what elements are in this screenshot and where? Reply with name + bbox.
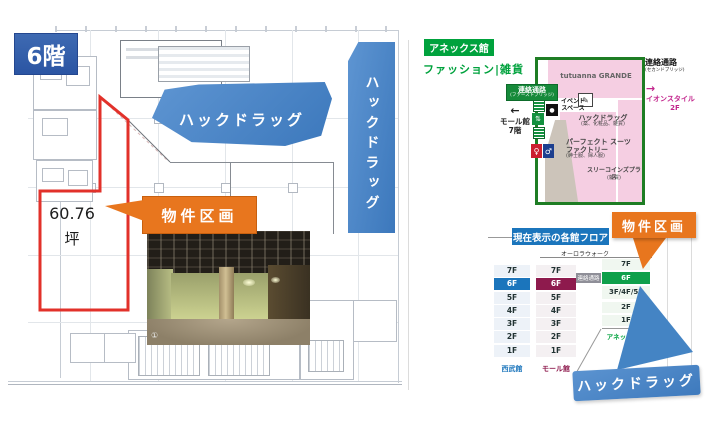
store-category-hackdrug: (薬、化粧品、雑貨) xyxy=(568,122,638,128)
annex-column-label: アネックス館 xyxy=(602,331,650,341)
camera-icon: ● xyxy=(549,107,554,114)
hackdrug-vertical-label: ハックドラッグ xyxy=(362,75,382,215)
photo-column xyxy=(219,267,234,325)
floor-cell: 2F xyxy=(494,331,530,343)
floor-cell: 3F xyxy=(536,318,576,330)
property-section-callout-right: 物件区画 xyxy=(612,212,696,238)
seibu-column-label: 西武館 xyxy=(494,364,530,374)
hackdrug-callout-label: ハックドラッグ xyxy=(179,109,305,130)
aurora-walk-label: オーロラウォーク xyxy=(554,249,616,258)
corridor-second-bridge-label: 連絡通路 (セカンドブリッジ) xyxy=(645,58,703,73)
hackdrug-callout-bottom: ハックドラッグ xyxy=(572,365,700,402)
store-category-suits: (紳士服、婦人服) xyxy=(566,154,634,160)
floor-cell-highlight: 6F xyxy=(536,278,576,290)
photo-floor xyxy=(147,319,310,345)
camera-box-icon: ● xyxy=(546,104,558,116)
left-arrow-icon: ← xyxy=(493,104,537,117)
floor-cell: 3F xyxy=(494,318,530,330)
panel-left-guide xyxy=(408,40,409,390)
floor-cell: 5F xyxy=(494,292,530,304)
photo-wall-right xyxy=(268,265,310,325)
floor-cell: 7F xyxy=(536,265,576,277)
photo-number-marker: ① xyxy=(151,331,158,340)
restroom-female-icon: ♀ xyxy=(531,144,542,158)
restroom-male-icon: ♂ xyxy=(543,144,554,158)
store-category-threecoins: (雑貨) xyxy=(586,176,642,182)
floor-cell: 3F/4F/5F xyxy=(602,286,650,299)
floor-cell: 5F xyxy=(536,292,576,304)
corridor-first-bridge-badge: 連絡通路 (ファーストブリッジ) xyxy=(506,84,558,101)
right-arrow-icon: → xyxy=(646,82,704,95)
mall-floor-column: 7F 6F 5F 4F 3F 2F 1F xyxy=(536,265,576,358)
escalator-icon: ⇅ xyxy=(532,113,544,125)
floor-cell: 2F xyxy=(536,331,576,343)
floor-cell: 4F xyxy=(494,305,530,317)
property-section-callout: 物件区画 xyxy=(142,196,257,234)
floor-cell: 1F xyxy=(602,315,650,326)
hackdrug-callout-vertical: ハックドラッグ xyxy=(348,42,395,233)
floor-number-badge: 6階 xyxy=(14,33,78,75)
floor-cell: 2F xyxy=(602,302,650,313)
aeon-style-link: → イオンスタイル 2F xyxy=(646,82,704,112)
panel-right-guide-2 xyxy=(691,228,692,385)
category-label: ファッション|雑貨 xyxy=(423,61,524,77)
floor-guide-panel: アネックス館 ファッション|雑貨 tutuanna GRANDE ✎ ● イベン… xyxy=(408,18,702,408)
photo-wall-left xyxy=(147,269,173,325)
event-space-label: イベント スペース xyxy=(558,99,588,112)
floor-cell: 7F xyxy=(494,265,530,277)
photo-light xyxy=(271,277,280,283)
store-label-suits-1: パーフェクト スーツ xyxy=(566,138,634,146)
floor-cell-highlight: 6F xyxy=(602,272,650,284)
floor-cell: 1F xyxy=(536,345,576,357)
floor-cell-highlight: 6F xyxy=(494,278,530,290)
property-section-label: 物件区画 xyxy=(161,205,237,226)
mall-map: tutuanna GRANDE ✎ ● イベント スペース ハックドラッグ (薬… xyxy=(535,57,645,205)
corridor-connector-badge: 連絡通路 xyxy=(576,273,601,283)
property-flyer-page: { "left_panel": { "floor_badge": "6階", "… xyxy=(0,0,705,423)
floor-number-label: 6階 xyxy=(26,37,65,71)
stair-icon xyxy=(533,100,545,112)
stair-icon xyxy=(533,127,545,139)
mall-link: ← モール館 7階 xyxy=(493,104,537,135)
annex-badge-label: アネックス館 xyxy=(429,40,489,55)
annex-bottom-line xyxy=(602,328,650,329)
annex-building-badge: アネックス館 xyxy=(424,39,494,56)
panel-right-guide-1 xyxy=(667,228,668,385)
store-label-tutuanna: tutuanna GRANDE xyxy=(556,72,636,80)
photo-light xyxy=(243,279,255,286)
table-header-line xyxy=(488,237,512,238)
mall-column-label: モール館 xyxy=(536,364,576,374)
seibu-floor-column: 7F 6F 5F 4F 3F 2F 1F xyxy=(494,265,530,358)
interior-photo: ① xyxy=(147,231,310,345)
annex-floor-column: 7F 6F 3F/4F/5F 2F 1F xyxy=(602,259,650,329)
floor-cell: 1F xyxy=(494,345,530,357)
floor-table-header: 現在表示の各館フロア xyxy=(512,228,609,245)
floor-plan-panel: 6階 ハックドラッグ ハックドラッグ 60.76 坪 物件区画 ① xyxy=(8,18,402,390)
floor-cell: 4F xyxy=(536,305,576,317)
